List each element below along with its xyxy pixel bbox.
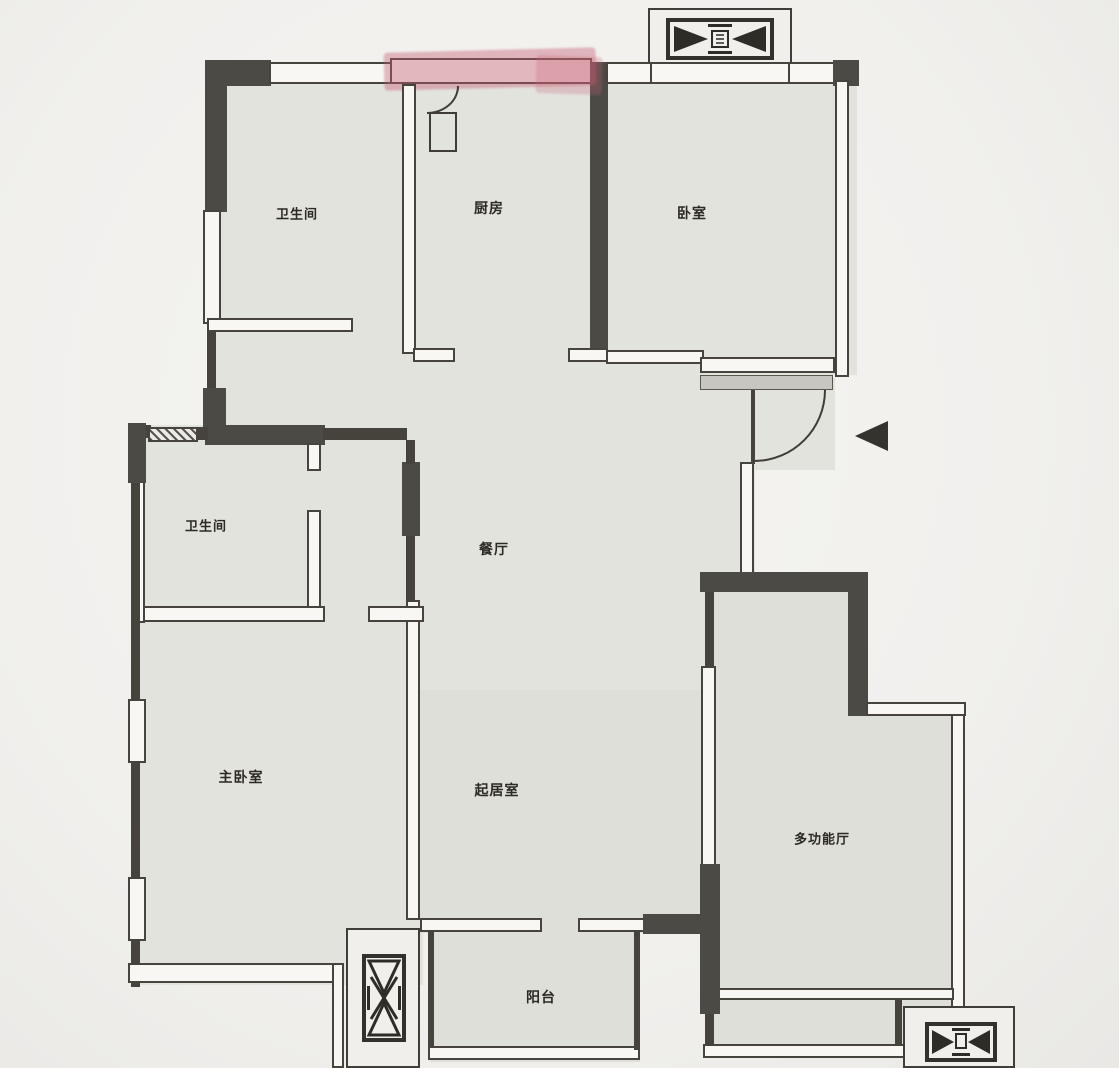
wall-segment (848, 592, 868, 716)
wall-segment (131, 761, 140, 879)
window-band (606, 62, 654, 84)
window-band (128, 877, 146, 941)
wall-band (420, 918, 542, 932)
elevator-icon-glyph (930, 1028, 992, 1056)
wall-segment (428, 930, 434, 1060)
wall-segment (207, 324, 216, 390)
room-label-master-bedroom: 主卧室 (219, 767, 264, 787)
room-label-dining-room: 餐厅 (479, 539, 509, 559)
wall-segment (643, 914, 705, 934)
room-floor-living (420, 690, 710, 933)
window-band (128, 699, 146, 763)
kitchen-fixture-box (429, 112, 457, 152)
wall-segment (895, 1000, 902, 1046)
window-band (700, 357, 835, 373)
room-label-multi-function-hall: 多功能厅 (794, 829, 850, 848)
wall-band (568, 348, 608, 362)
wall-segment (705, 592, 714, 668)
wall-band (740, 462, 754, 576)
wall-segment (196, 427, 208, 440)
elevator-icon-bottom-left (362, 954, 406, 1042)
room-label-bathroom-top-left: 卫生间 (276, 204, 318, 223)
wall-band (207, 318, 353, 332)
wall-segment (323, 428, 407, 440)
wall-band (402, 84, 416, 354)
wall-band (332, 963, 344, 1068)
elevator-icon-top (666, 18, 774, 60)
window-band (650, 62, 790, 84)
wall-band (368, 606, 424, 622)
entry-threshold (700, 375, 833, 390)
window-band (428, 1046, 640, 1060)
window-band (128, 963, 340, 983)
wall-segment (700, 572, 868, 592)
floor-plan-canvas: 卫生间 厨房 卧室 卫生间 餐厅 主卧室 起居室 多功能厅 阳台 (0, 0, 1119, 1068)
wall-segment (705, 1014, 714, 1046)
wall-segment (634, 930, 640, 1050)
elevator-icon-bottom-right (925, 1022, 997, 1062)
hatched-window (148, 427, 198, 442)
wall-band (718, 988, 954, 1000)
entry-direction-triangle (855, 421, 888, 451)
room-label-living-room: 起居室 (475, 780, 520, 800)
window-band (269, 62, 394, 84)
wall-segment (406, 440, 415, 464)
wall-segment (402, 462, 420, 536)
wall-segment (700, 864, 720, 1014)
wall-segment (205, 425, 325, 445)
room-label-balcony: 阳台 (526, 987, 556, 1007)
room-label-bedroom-top-right: 卧室 (677, 203, 707, 223)
door-leaf (751, 390, 755, 464)
room-label-kitchen: 厨房 (474, 198, 504, 218)
window-band (203, 210, 221, 324)
wall-band (406, 600, 420, 920)
wall-segment (205, 60, 227, 212)
room-label-bathroom-middle-left: 卫生间 (185, 516, 227, 535)
room-floor-left-wing (133, 425, 423, 985)
elevator-icon-glyph (672, 24, 768, 54)
wall-segment (590, 62, 608, 362)
window-band (835, 80, 849, 377)
wall-band (413, 348, 455, 362)
window-band (951, 714, 965, 1010)
wall-segment (131, 483, 140, 701)
elevator-icon-glyph (367, 959, 401, 1037)
wall-segment (128, 423, 146, 483)
wall-band (143, 606, 325, 622)
wall-band (606, 350, 704, 364)
room-floor-right-wing (705, 578, 867, 1053)
highlight-mark (535, 55, 602, 95)
window-band (701, 666, 716, 868)
wall-segment (406, 536, 415, 602)
wall-band (307, 443, 321, 471)
window-band (788, 62, 837, 84)
